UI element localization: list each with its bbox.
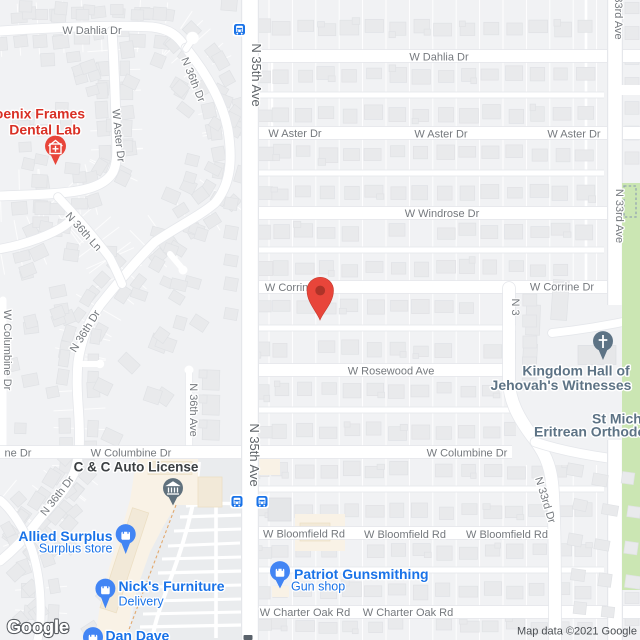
svg-text:N 3: N 3 <box>509 298 521 315</box>
svg-text:W Corrine Dr: W Corrine Dr <box>530 282 595 294</box>
svg-text:C & C Auto License: C & C Auto License <box>74 460 199 475</box>
svg-text:W Rosewood Ave: W Rosewood Ave <box>348 366 435 378</box>
svg-text:W Columbine Dr: W Columbine Dr <box>91 448 172 460</box>
svg-text:W Charter Oak Rd: W Charter Oak Rd <box>363 607 453 619</box>
svg-text:Phoenix Frames: Phoenix Frames <box>0 106 85 122</box>
svg-text:W Bloomfield Rd: W Bloomfield Rd <box>263 529 345 541</box>
svg-text:N 33rd Ave: N 33rd Ave <box>613 189 625 243</box>
svg-text:Surplus store: Surplus store <box>39 542 113 556</box>
svg-text:W Dahlia Dr: W Dahlia Dr <box>409 52 469 64</box>
svg-text:Jehovah's Witnesses: Jehovah's Witnesses <box>491 377 632 393</box>
svg-text:N 35th Ave: N 35th Ave <box>247 423 262 486</box>
svg-text:Gun shop: Gun shop <box>291 580 345 594</box>
svg-text:Delivery: Delivery <box>119 595 165 609</box>
svg-text:W Aster Dr: W Aster Dr <box>547 129 601 141</box>
svg-text:W Bloomfield Rd: W Bloomfield Rd <box>364 529 446 541</box>
svg-text:Nick's Furniture: Nick's Furniture <box>119 578 225 594</box>
svg-text:Dan Dave: Dan Dave <box>106 628 170 640</box>
svg-text:W Bloomfield Rd: W Bloomfield Rd <box>466 529 548 541</box>
svg-text:33rd Ave: 33rd Ave <box>612 0 624 40</box>
svg-text:W Dahlia Dr: W Dahlia Dr <box>62 25 122 37</box>
svg-text:Dental Lab: Dental Lab <box>9 122 81 138</box>
svg-text:ne Dr: ne Dr <box>5 448 32 460</box>
svg-text:Eritrean Orthodox: Eritrean Orthodox <box>534 424 640 440</box>
svg-text:W Windrose Dr: W Windrose Dr <box>405 208 480 220</box>
svg-text:N 35th Ave: N 35th Ave <box>249 43 264 106</box>
svg-text:Google: Google <box>7 617 69 637</box>
svg-text:W Charter Oak Rd: W Charter Oak Rd <box>260 607 350 619</box>
svg-text:W Aster Dr: W Aster Dr <box>268 128 322 140</box>
svg-text:W Columbine Dr: W Columbine Dr <box>1 310 13 391</box>
svg-text:W Columbine Dr: W Columbine Dr <box>427 448 508 460</box>
svg-text:Map data ©2021 Google: Map data ©2021 Google <box>517 626 637 638</box>
svg-text:N 36th Ave: N 36th Ave <box>187 383 199 437</box>
svg-text:W Aster Dr: W Aster Dr <box>414 129 468 141</box>
